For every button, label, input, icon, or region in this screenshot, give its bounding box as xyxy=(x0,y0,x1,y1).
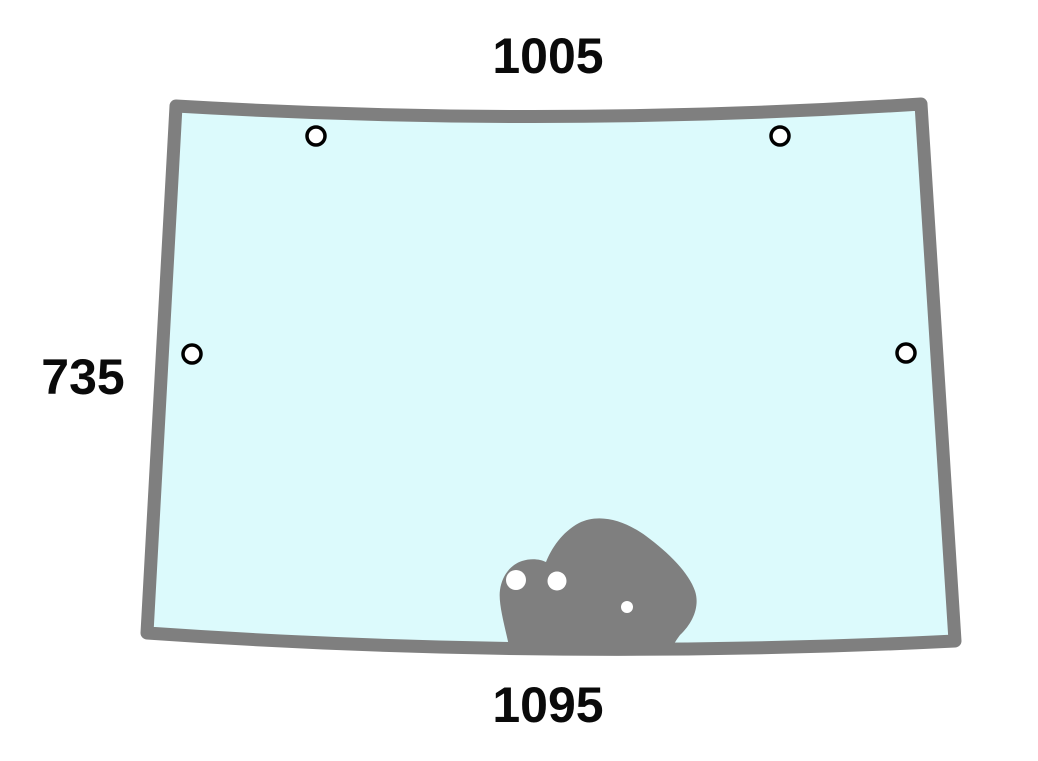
mounting-hole-left xyxy=(183,345,201,363)
bracket-hole-small xyxy=(621,601,633,613)
dimension-label-left-height: 735 xyxy=(41,349,124,405)
mounting-hole-right xyxy=(897,344,915,362)
mounting-hole-top-right xyxy=(771,127,789,145)
dimension-label-top-width: 1005 xyxy=(492,28,603,84)
mounting-hole-top-left xyxy=(307,127,325,145)
diagram-page: 1005 735 1095 xyxy=(0,0,1038,761)
bracket-hole-left xyxy=(506,570,526,590)
bracket-hole-middle xyxy=(548,572,567,591)
windscreen-dimension-diagram: 1005 735 1095 xyxy=(0,0,1038,761)
dimension-label-bottom-width: 1095 xyxy=(492,677,603,733)
